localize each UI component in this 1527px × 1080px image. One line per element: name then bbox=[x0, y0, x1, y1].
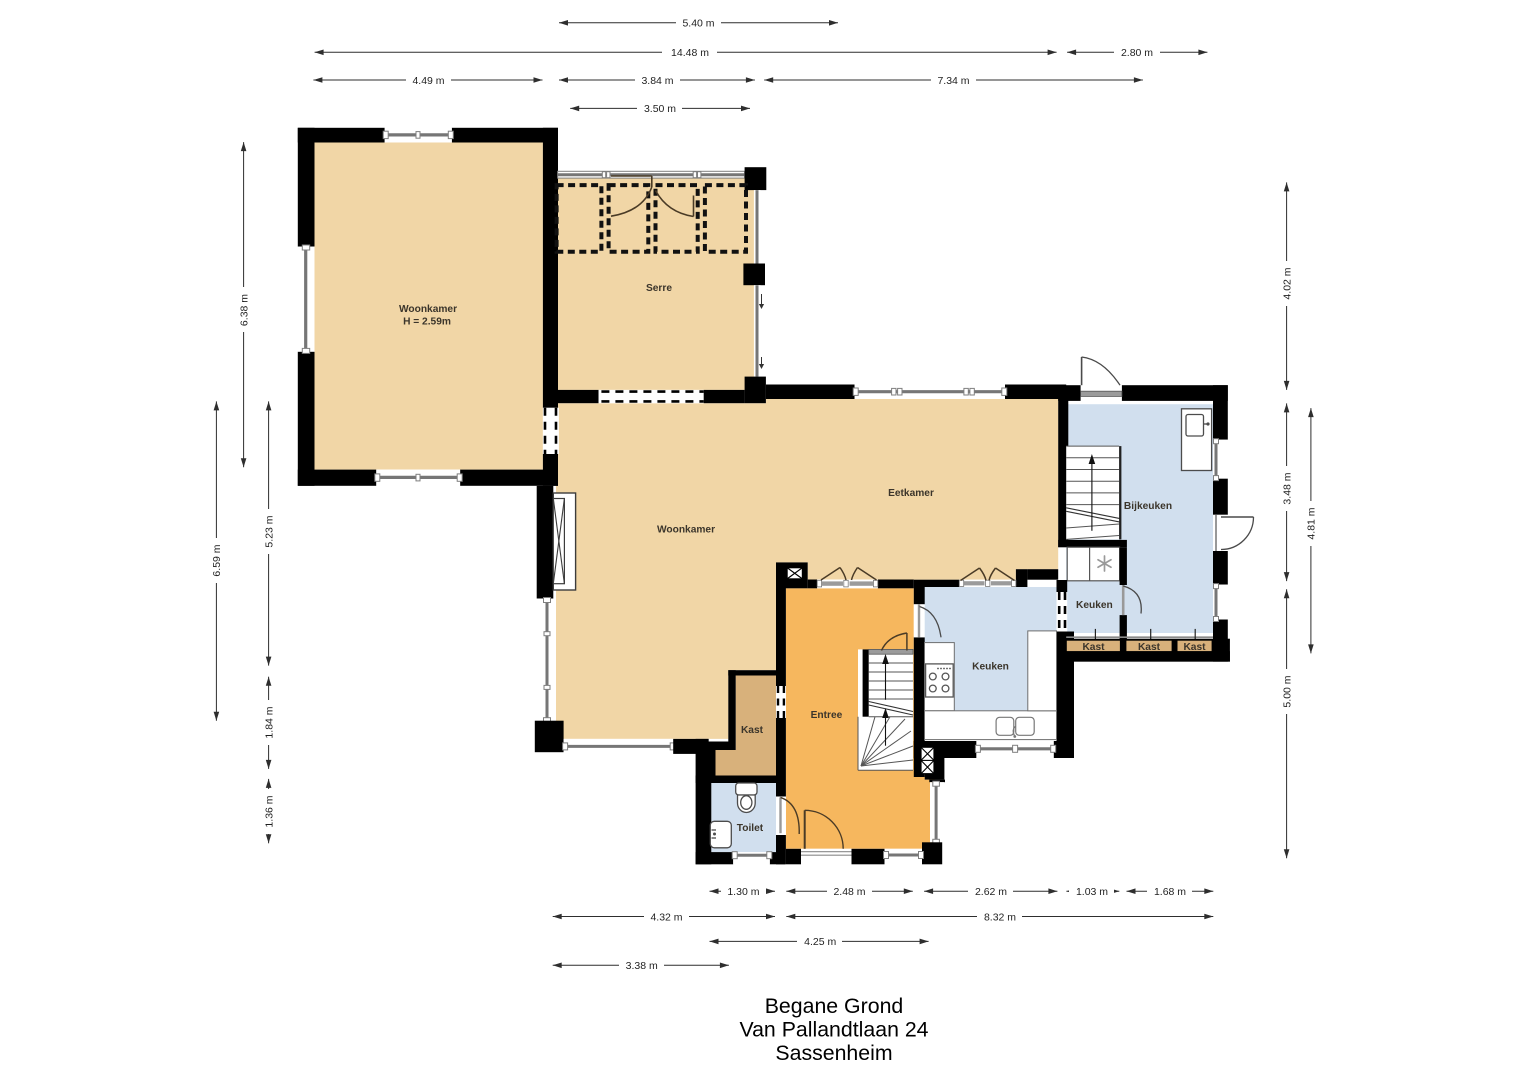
svg-text:14.48 m: 14.48 m bbox=[671, 47, 709, 59]
svg-text:7.34 m: 7.34 m bbox=[937, 75, 969, 87]
svg-text:4.02 m: 4.02 m bbox=[1281, 267, 1293, 299]
svg-text:1.68 m: 1.68 m bbox=[1154, 886, 1186, 898]
svg-text:Eetkamer: Eetkamer bbox=[888, 488, 934, 499]
svg-text:8.32 m: 8.32 m bbox=[984, 911, 1016, 923]
svg-text:4.25 m: 4.25 m bbox=[804, 936, 836, 948]
svg-text:Toilet: Toilet bbox=[737, 823, 764, 834]
svg-text:1.36 m: 1.36 m bbox=[263, 795, 275, 827]
svg-text:Kast: Kast bbox=[1138, 642, 1161, 653]
svg-text:4.81 m: 4.81 m bbox=[1306, 507, 1318, 539]
svg-text:2.48 m: 2.48 m bbox=[833, 886, 865, 898]
svg-text:4.32 m: 4.32 m bbox=[650, 911, 682, 923]
svg-text:Sassenheim: Sassenheim bbox=[775, 1041, 892, 1065]
svg-text:1.84 m: 1.84 m bbox=[263, 706, 275, 738]
svg-text:5.00 m: 5.00 m bbox=[1281, 675, 1293, 707]
svg-text:Entree: Entree bbox=[811, 710, 843, 721]
svg-text:5.40 m: 5.40 m bbox=[682, 18, 714, 30]
svg-text:3.38 m: 3.38 m bbox=[626, 960, 658, 972]
svg-text:6.59 m: 6.59 m bbox=[211, 544, 223, 576]
svg-text:1.30 m: 1.30 m bbox=[727, 886, 759, 898]
svg-text:Begane Grond: Begane Grond bbox=[765, 994, 904, 1018]
svg-text:Kast: Kast bbox=[1082, 642, 1105, 653]
svg-text:Van Pallandtlaan 24: Van Pallandtlaan 24 bbox=[739, 1018, 928, 1042]
svg-text:6.38 m: 6.38 m bbox=[238, 294, 250, 326]
svg-text:3.50 m: 3.50 m bbox=[644, 103, 676, 115]
svg-text:Kast: Kast bbox=[741, 725, 764, 736]
svg-text:Kast: Kast bbox=[1183, 642, 1206, 653]
svg-text:4.49 m: 4.49 m bbox=[412, 75, 444, 87]
svg-text:Keuken: Keuken bbox=[1076, 600, 1113, 611]
svg-text:Woonkamer: Woonkamer bbox=[399, 304, 457, 315]
svg-text:3.84 m: 3.84 m bbox=[641, 75, 673, 87]
svg-text:2.80 m: 2.80 m bbox=[1121, 47, 1153, 59]
svg-text:Keuken: Keuken bbox=[972, 662, 1009, 673]
svg-text:1.03 m: 1.03 m bbox=[1076, 886, 1108, 898]
svg-text:Bijkeuken: Bijkeuken bbox=[1124, 501, 1172, 512]
svg-text:3.48 m: 3.48 m bbox=[1281, 472, 1293, 504]
svg-text:2.62 m: 2.62 m bbox=[975, 886, 1007, 898]
svg-text:H = 2.59m: H = 2.59m bbox=[403, 317, 451, 328]
svg-text:5.23 m: 5.23 m bbox=[263, 515, 275, 547]
svg-text:Serre: Serre bbox=[646, 283, 672, 294]
svg-text:Woonkamer: Woonkamer bbox=[657, 525, 715, 536]
